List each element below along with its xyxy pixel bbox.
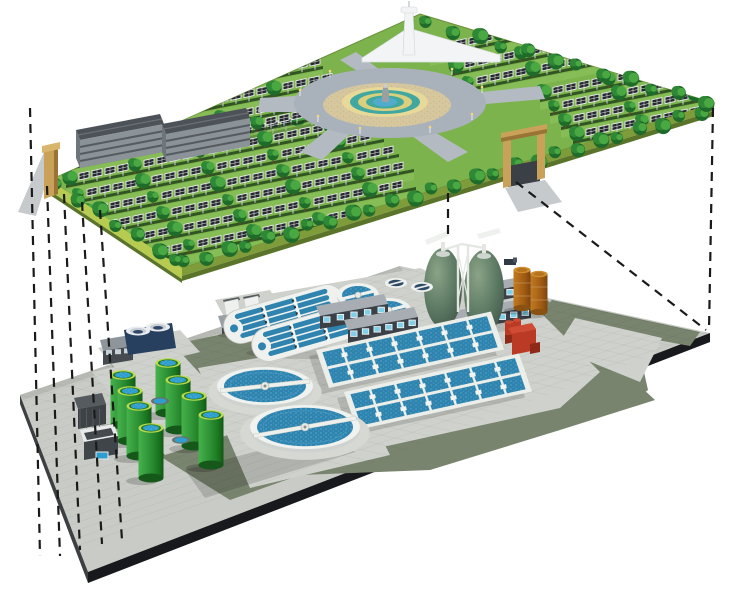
illustration-canvas (0, 0, 740, 589)
upper-deck-solar-park (18, 1, 721, 283)
lower-deck-treatment-plant (0, 228, 740, 583)
exploded-view-diagram (0, 0, 740, 589)
